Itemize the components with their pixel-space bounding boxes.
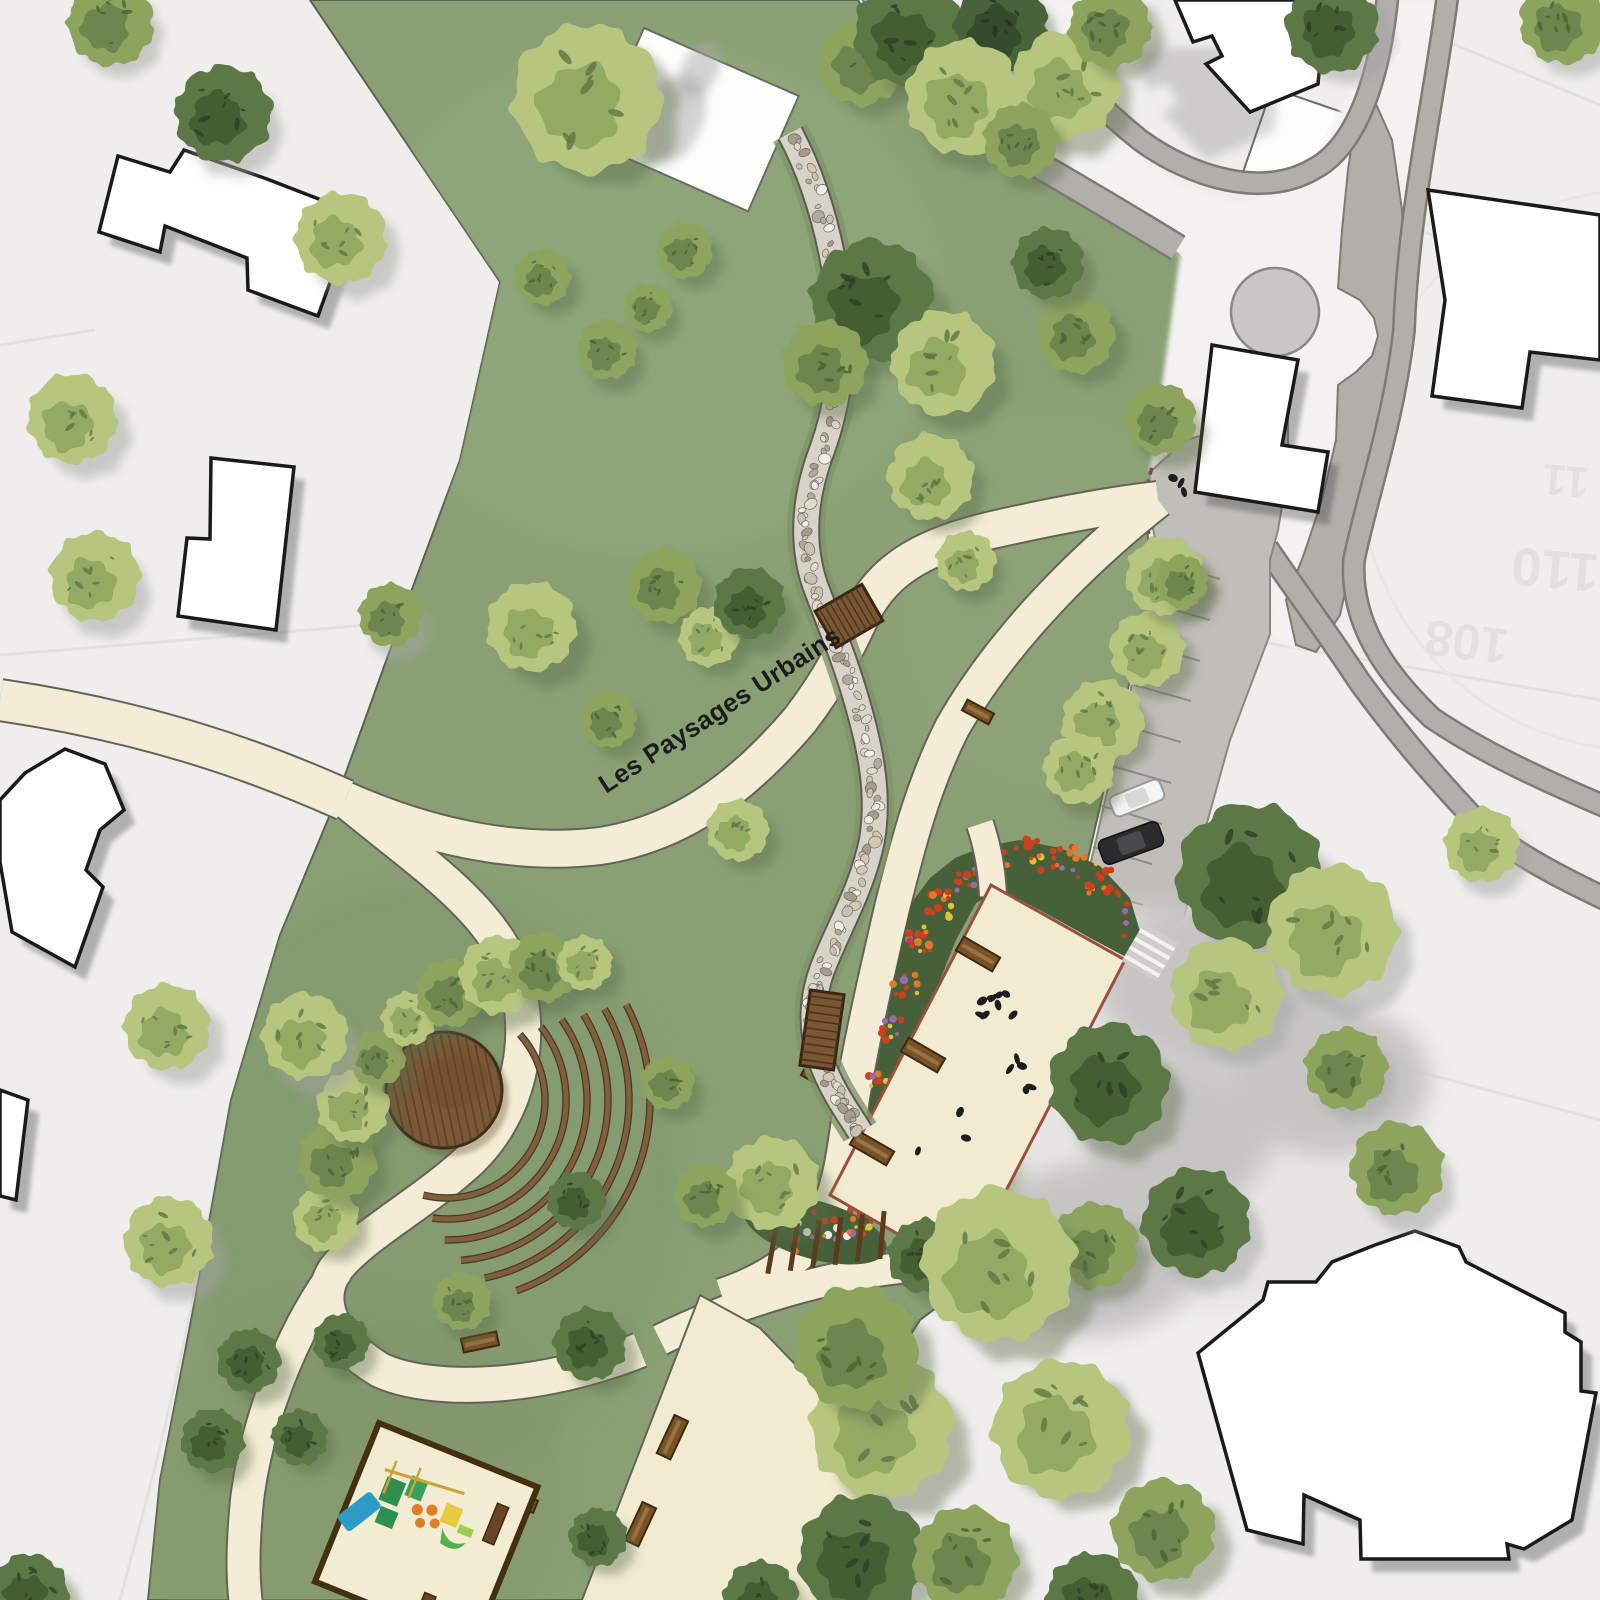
svg-text:110: 110 bbox=[1509, 535, 1600, 602]
svg-text:11: 11 bbox=[1540, 454, 1591, 507]
svg-text:108: 108 bbox=[1422, 609, 1512, 675]
